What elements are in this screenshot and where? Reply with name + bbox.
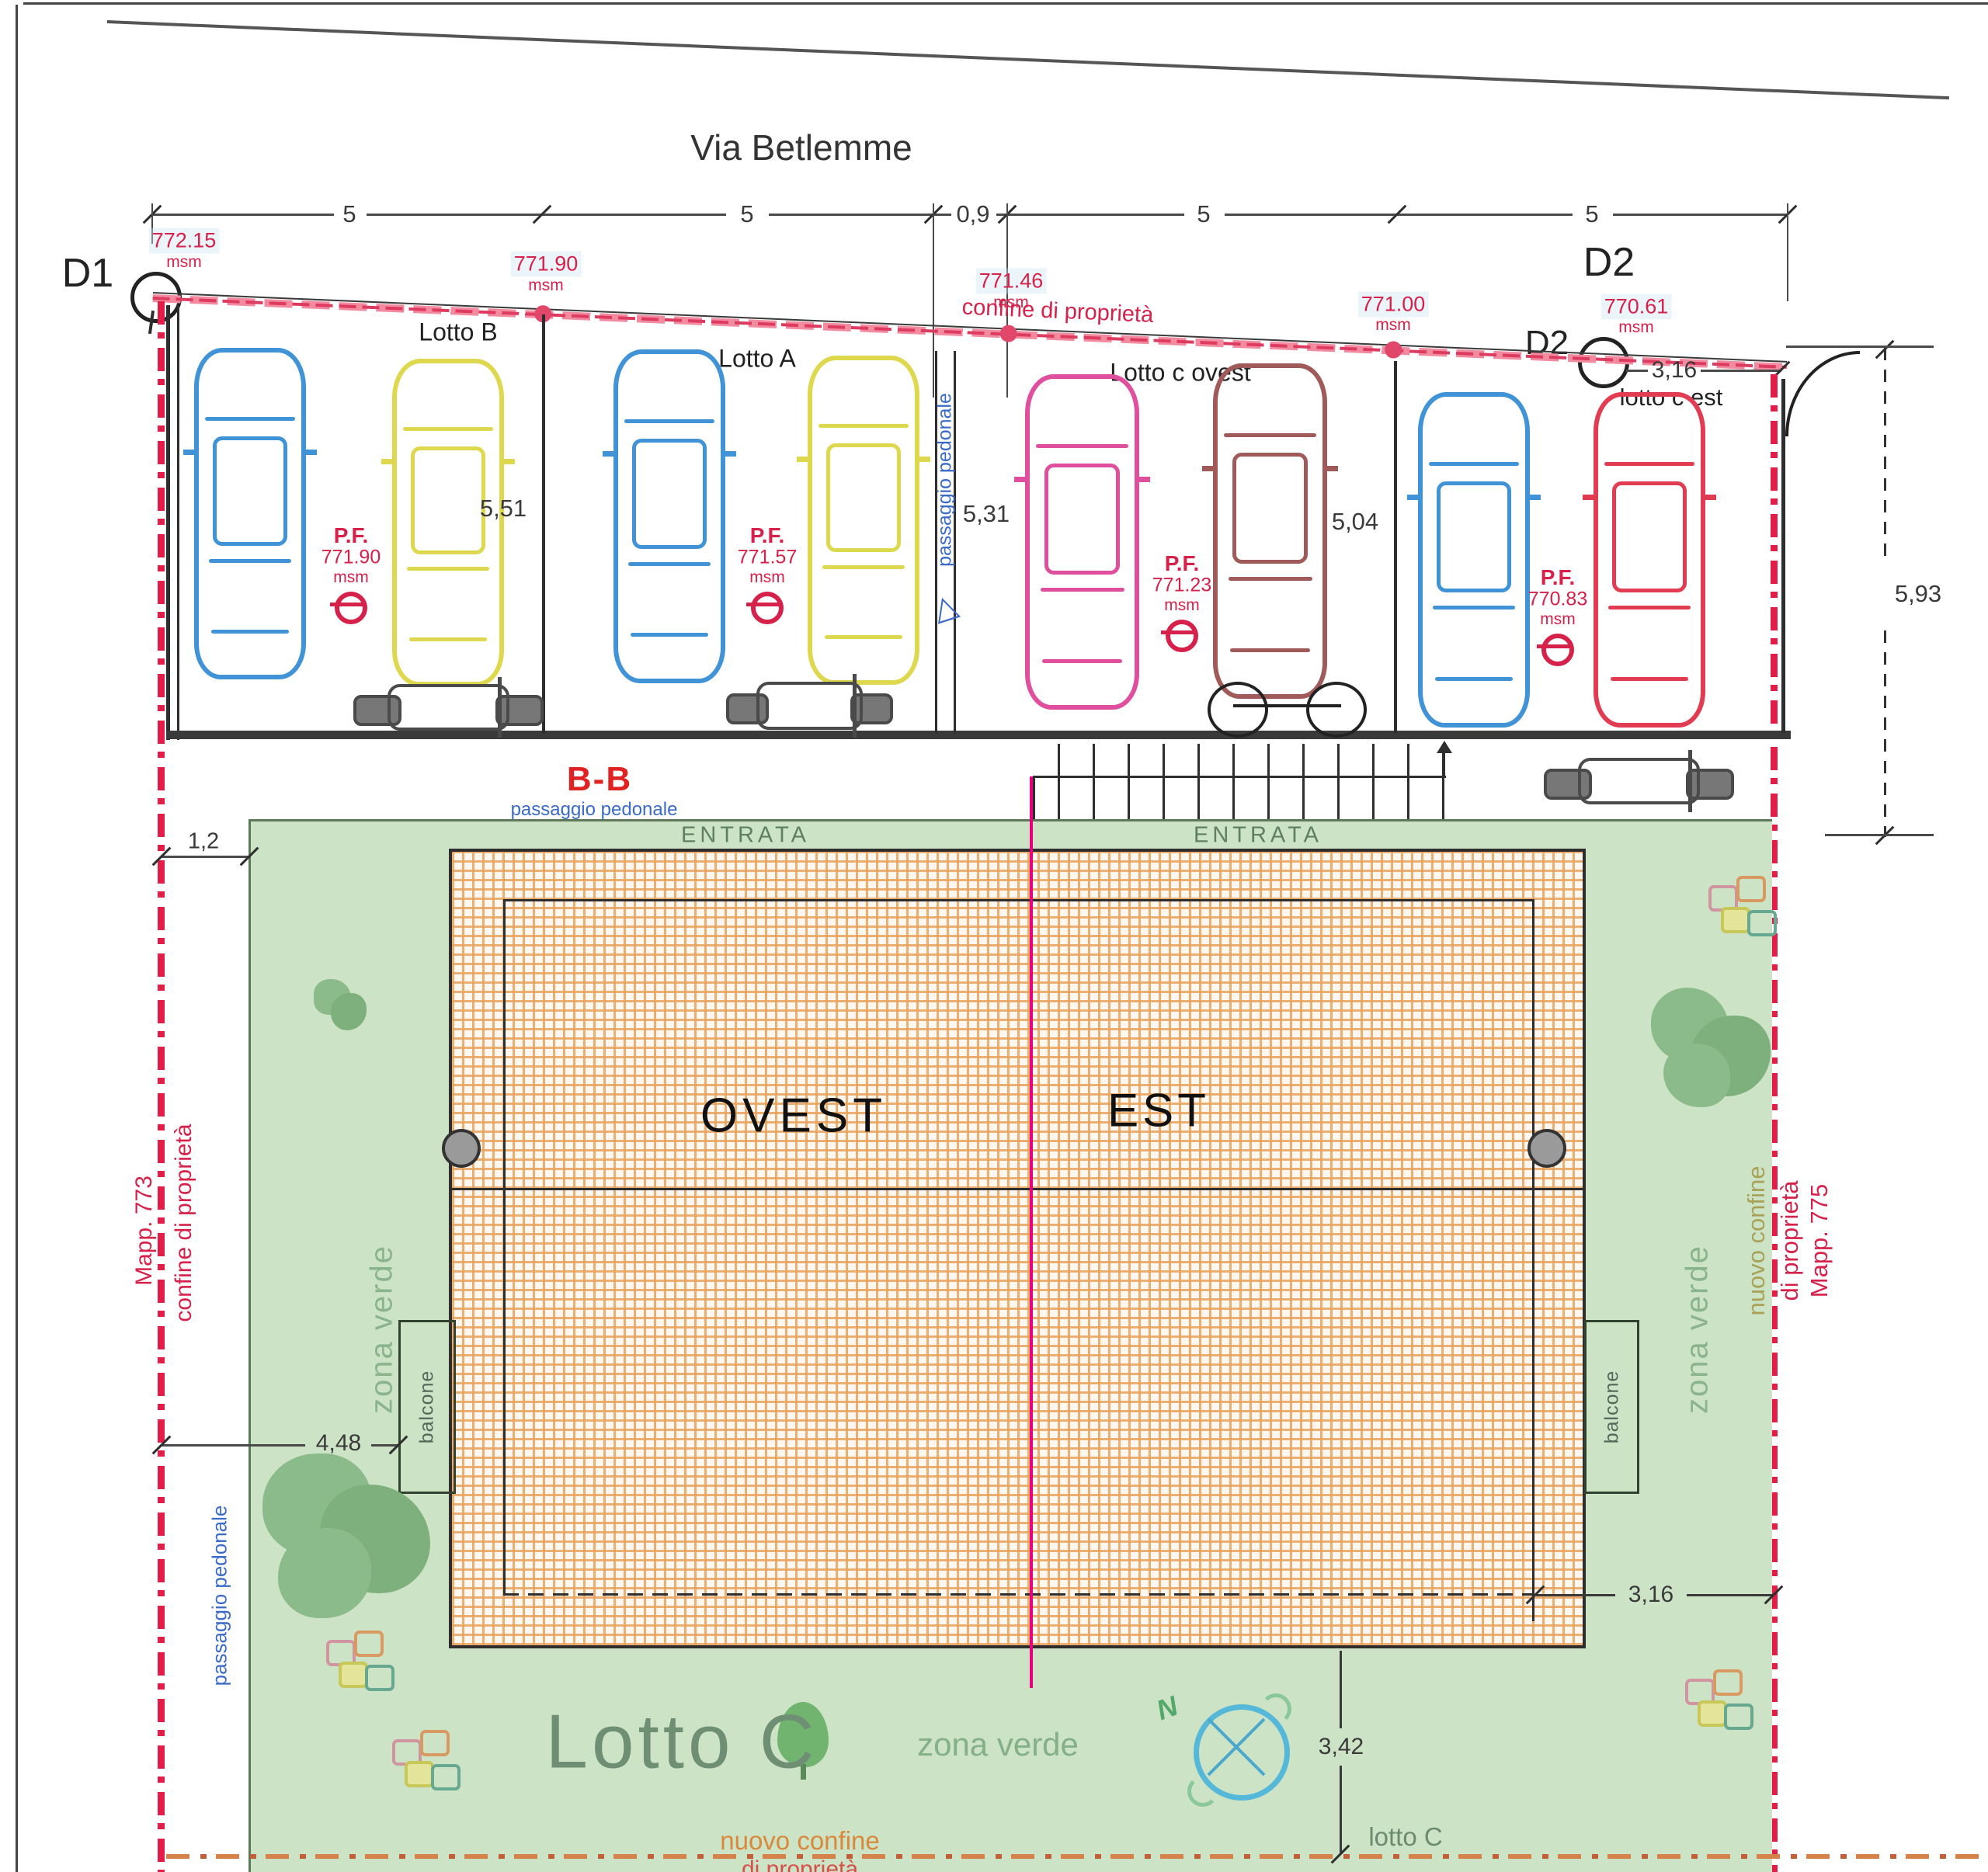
elevation-unit: msm bbox=[528, 276, 564, 295]
building-inner-wall-left bbox=[503, 899, 506, 1596]
dim-label-342: 3,42 bbox=[1319, 1734, 1364, 1760]
elevation-unit: msm bbox=[166, 253, 202, 272]
dim-label: 5 bbox=[342, 200, 356, 228]
lotto-c-title: Lotto C bbox=[546, 1698, 818, 1786]
boundary-label: confine di proprietà bbox=[961, 295, 1154, 328]
entrata-right-label: ENTRATA bbox=[1194, 823, 1322, 849]
top-dim-line bbox=[367, 214, 726, 216]
column-icon bbox=[1527, 1129, 1566, 1168]
compass-icon bbox=[1194, 1704, 1279, 1790]
motorcycle-icon bbox=[1544, 750, 1734, 812]
building-mid-line bbox=[449, 1188, 1586, 1190]
balcony-right-label: balcone bbox=[1600, 1370, 1623, 1444]
section-marker-d2: D2 bbox=[1583, 239, 1635, 286]
scan-left-border bbox=[16, 5, 18, 1872]
pf-value: 770.83 bbox=[1528, 589, 1587, 611]
dim-12-line bbox=[162, 856, 250, 858]
dim-316b-line bbox=[1687, 1594, 1774, 1596]
car-icon bbox=[1594, 392, 1705, 728]
right-mapp-label: Mapp. 775 bbox=[1806, 1184, 1833, 1298]
depth-dim-est: 5,93 bbox=[1895, 580, 1941, 608]
elevation-value: 771.46 bbox=[976, 269, 1047, 294]
green-zone-left-edge bbox=[248, 819, 251, 1872]
lot-label-a: Lotto A bbox=[718, 345, 796, 373]
dim-593-line bbox=[1884, 630, 1886, 837]
section-bb-sublabel: passaggio pedonale bbox=[511, 799, 678, 821]
elevation-value: 770.61 bbox=[1601, 294, 1672, 320]
top-dim-line bbox=[1613, 214, 1788, 216]
right-new-boundary-label: nuovo confine bbox=[1743, 1165, 1771, 1315]
dim-593-line bbox=[1884, 348, 1886, 557]
street-edge-line bbox=[107, 20, 1949, 99]
car-icon bbox=[1418, 392, 1530, 728]
entrata-left-label: ENTRATA bbox=[681, 823, 810, 849]
elevation-unit: msm bbox=[1375, 316, 1411, 335]
pf-marker-icon bbox=[335, 592, 367, 624]
column-icon bbox=[442, 1129, 481, 1168]
flower-cluster-icon bbox=[326, 1631, 400, 1697]
car-icon bbox=[1213, 363, 1327, 699]
elevation-value: 772.15 bbox=[149, 228, 220, 254]
top-dim-line bbox=[996, 214, 1184, 216]
dim-342-line bbox=[1340, 1651, 1342, 1728]
left-mapp-label: Mapp. 773 bbox=[131, 1176, 158, 1286]
tree-icon bbox=[255, 1441, 437, 1627]
elevation-value: 771.90 bbox=[511, 252, 582, 277]
section-marker-d1: D1 bbox=[62, 250, 113, 297]
depth-dim-ovest: 5,04 bbox=[1332, 508, 1378, 536]
dim-label-12: 1,2 bbox=[188, 829, 219, 855]
top-dim-line bbox=[769, 214, 951, 216]
dim-label-316-bottom: 3,16 bbox=[1628, 1582, 1673, 1608]
zona-verde-bottom-label: zona verde bbox=[917, 1726, 1079, 1763]
elevation-unit: msm bbox=[1618, 318, 1654, 337]
flower-cluster-icon bbox=[392, 1730, 466, 1796]
center-divider-line bbox=[1030, 776, 1033, 1688]
car-icon bbox=[392, 359, 504, 686]
dim-label: 5 bbox=[1197, 200, 1210, 228]
building-inner-wall-right bbox=[1532, 899, 1534, 1621]
pf-label: P.F. bbox=[1165, 551, 1200, 576]
dim-label: 5 bbox=[740, 200, 753, 228]
dim-label: 5 bbox=[1585, 200, 1598, 228]
left-boundary-label: confine di proprietà bbox=[171, 1124, 197, 1322]
elevation-unit: msm bbox=[993, 293, 1029, 312]
balcony-right: balcone bbox=[1584, 1320, 1639, 1494]
pf-value: 771.57 bbox=[738, 547, 797, 569]
right-di-proprieta-label: di proprietà bbox=[1776, 1180, 1804, 1301]
bicycle-icon bbox=[1208, 677, 1367, 736]
pf-unit: msm bbox=[1164, 596, 1200, 615]
pf-marker-icon bbox=[1166, 620, 1198, 652]
pf-label: P.F. bbox=[334, 523, 369, 548]
building-inner-wall-top bbox=[503, 899, 1534, 901]
dim-342-line bbox=[1340, 1766, 1342, 1853]
tree-icon bbox=[1646, 980, 1778, 1117]
pf-unit: msm bbox=[749, 568, 785, 587]
pf-value: 771.90 bbox=[321, 547, 381, 569]
unit-east-label: EST bbox=[1107, 1084, 1210, 1137]
top-dim-line bbox=[152, 214, 334, 216]
new-boundary-line bbox=[166, 1854, 1984, 1859]
pf-marker-icon bbox=[1541, 634, 1574, 666]
lot-label-b: Lotto B bbox=[419, 318, 497, 347]
corridor-label: passaggio pedonale bbox=[934, 393, 957, 567]
pf-unit: msm bbox=[1540, 610, 1576, 629]
motorcycle-icon bbox=[726, 674, 893, 738]
dim-316-line bbox=[1626, 370, 1648, 372]
pf-label: P.F. bbox=[750, 523, 785, 548]
pf-marker-icon bbox=[751, 592, 784, 624]
section-bb-label: B-B bbox=[567, 760, 632, 799]
pf-label: P.F. bbox=[1541, 565, 1576, 590]
motorcycle-icon bbox=[353, 677, 544, 738]
building-footprint bbox=[449, 849, 1586, 1648]
car-icon bbox=[613, 349, 725, 683]
left-passaggio-label: passaggio pedonale bbox=[208, 1506, 232, 1686]
dim-label: 0,9 bbox=[956, 200, 989, 228]
scan-top-border bbox=[23, 2, 1988, 5]
dim-316-line bbox=[1701, 370, 1781, 372]
dim-extension-line bbox=[1787, 203, 1788, 301]
boundary-node bbox=[999, 325, 1017, 342]
dim-593-stub bbox=[1825, 834, 1934, 836]
pf-value: 771.23 bbox=[1152, 575, 1211, 597]
parking-divider-ovest-est bbox=[1394, 361, 1397, 734]
parking-left-wall-inner bbox=[177, 305, 179, 740]
parking-left-wall bbox=[166, 305, 170, 740]
street-corner-curve bbox=[1785, 351, 1860, 436]
stairs-arrow-head bbox=[1437, 741, 1452, 753]
lotto-c-small-label: lotto C bbox=[1368, 1822, 1442, 1852]
new-boundary-label: nuovo confine bbox=[720, 1826, 880, 1856]
new-boundary-label-2: di proprietà bbox=[742, 1856, 858, 1872]
depth-dim-a: 5,31 bbox=[963, 500, 1010, 528]
unit-west-label: OVEST bbox=[700, 1089, 887, 1144]
dim-extension-line bbox=[933, 203, 934, 398]
stairs-rail bbox=[1033, 776, 1446, 778]
building-inner-wall-bottom bbox=[503, 1593, 1534, 1596]
elevation-value: 771.00 bbox=[1358, 292, 1429, 318]
car-icon bbox=[1025, 374, 1139, 710]
site-plan-canvas: Via Betlemme 5 5 0,9 5 5 D1 D2 D2 confin… bbox=[0, 0, 1988, 1872]
car-icon bbox=[194, 348, 306, 679]
dim-593-stub bbox=[1786, 346, 1934, 348]
boundary-node bbox=[1385, 341, 1402, 359]
parking-divider-b-a bbox=[542, 314, 545, 734]
pf-unit: msm bbox=[333, 568, 369, 587]
stairs-arrow-stem bbox=[1443, 752, 1445, 778]
pedestrian-arrow-icon: △ bbox=[928, 586, 961, 627]
car-icon bbox=[808, 356, 919, 685]
zona-verde-right-label: zona verde bbox=[1680, 1245, 1715, 1414]
green-zone-top-edge bbox=[248, 819, 1772, 821]
dim-label-316-top: 3,16 bbox=[1652, 357, 1697, 384]
street-name: Via Betlemme bbox=[690, 127, 912, 168]
property-line-left bbox=[158, 301, 165, 1872]
balcony-left-label: balcone bbox=[416, 1370, 439, 1444]
depth-dim-b: 5,51 bbox=[480, 495, 527, 523]
flower-cluster-icon bbox=[1708, 876, 1782, 942]
tree-icon bbox=[311, 974, 371, 1038]
zona-verde-left-label: zona verde bbox=[365, 1245, 400, 1414]
dim-316b-line bbox=[1536, 1594, 1615, 1596]
flower-cluster-icon bbox=[1685, 1669, 1759, 1735]
